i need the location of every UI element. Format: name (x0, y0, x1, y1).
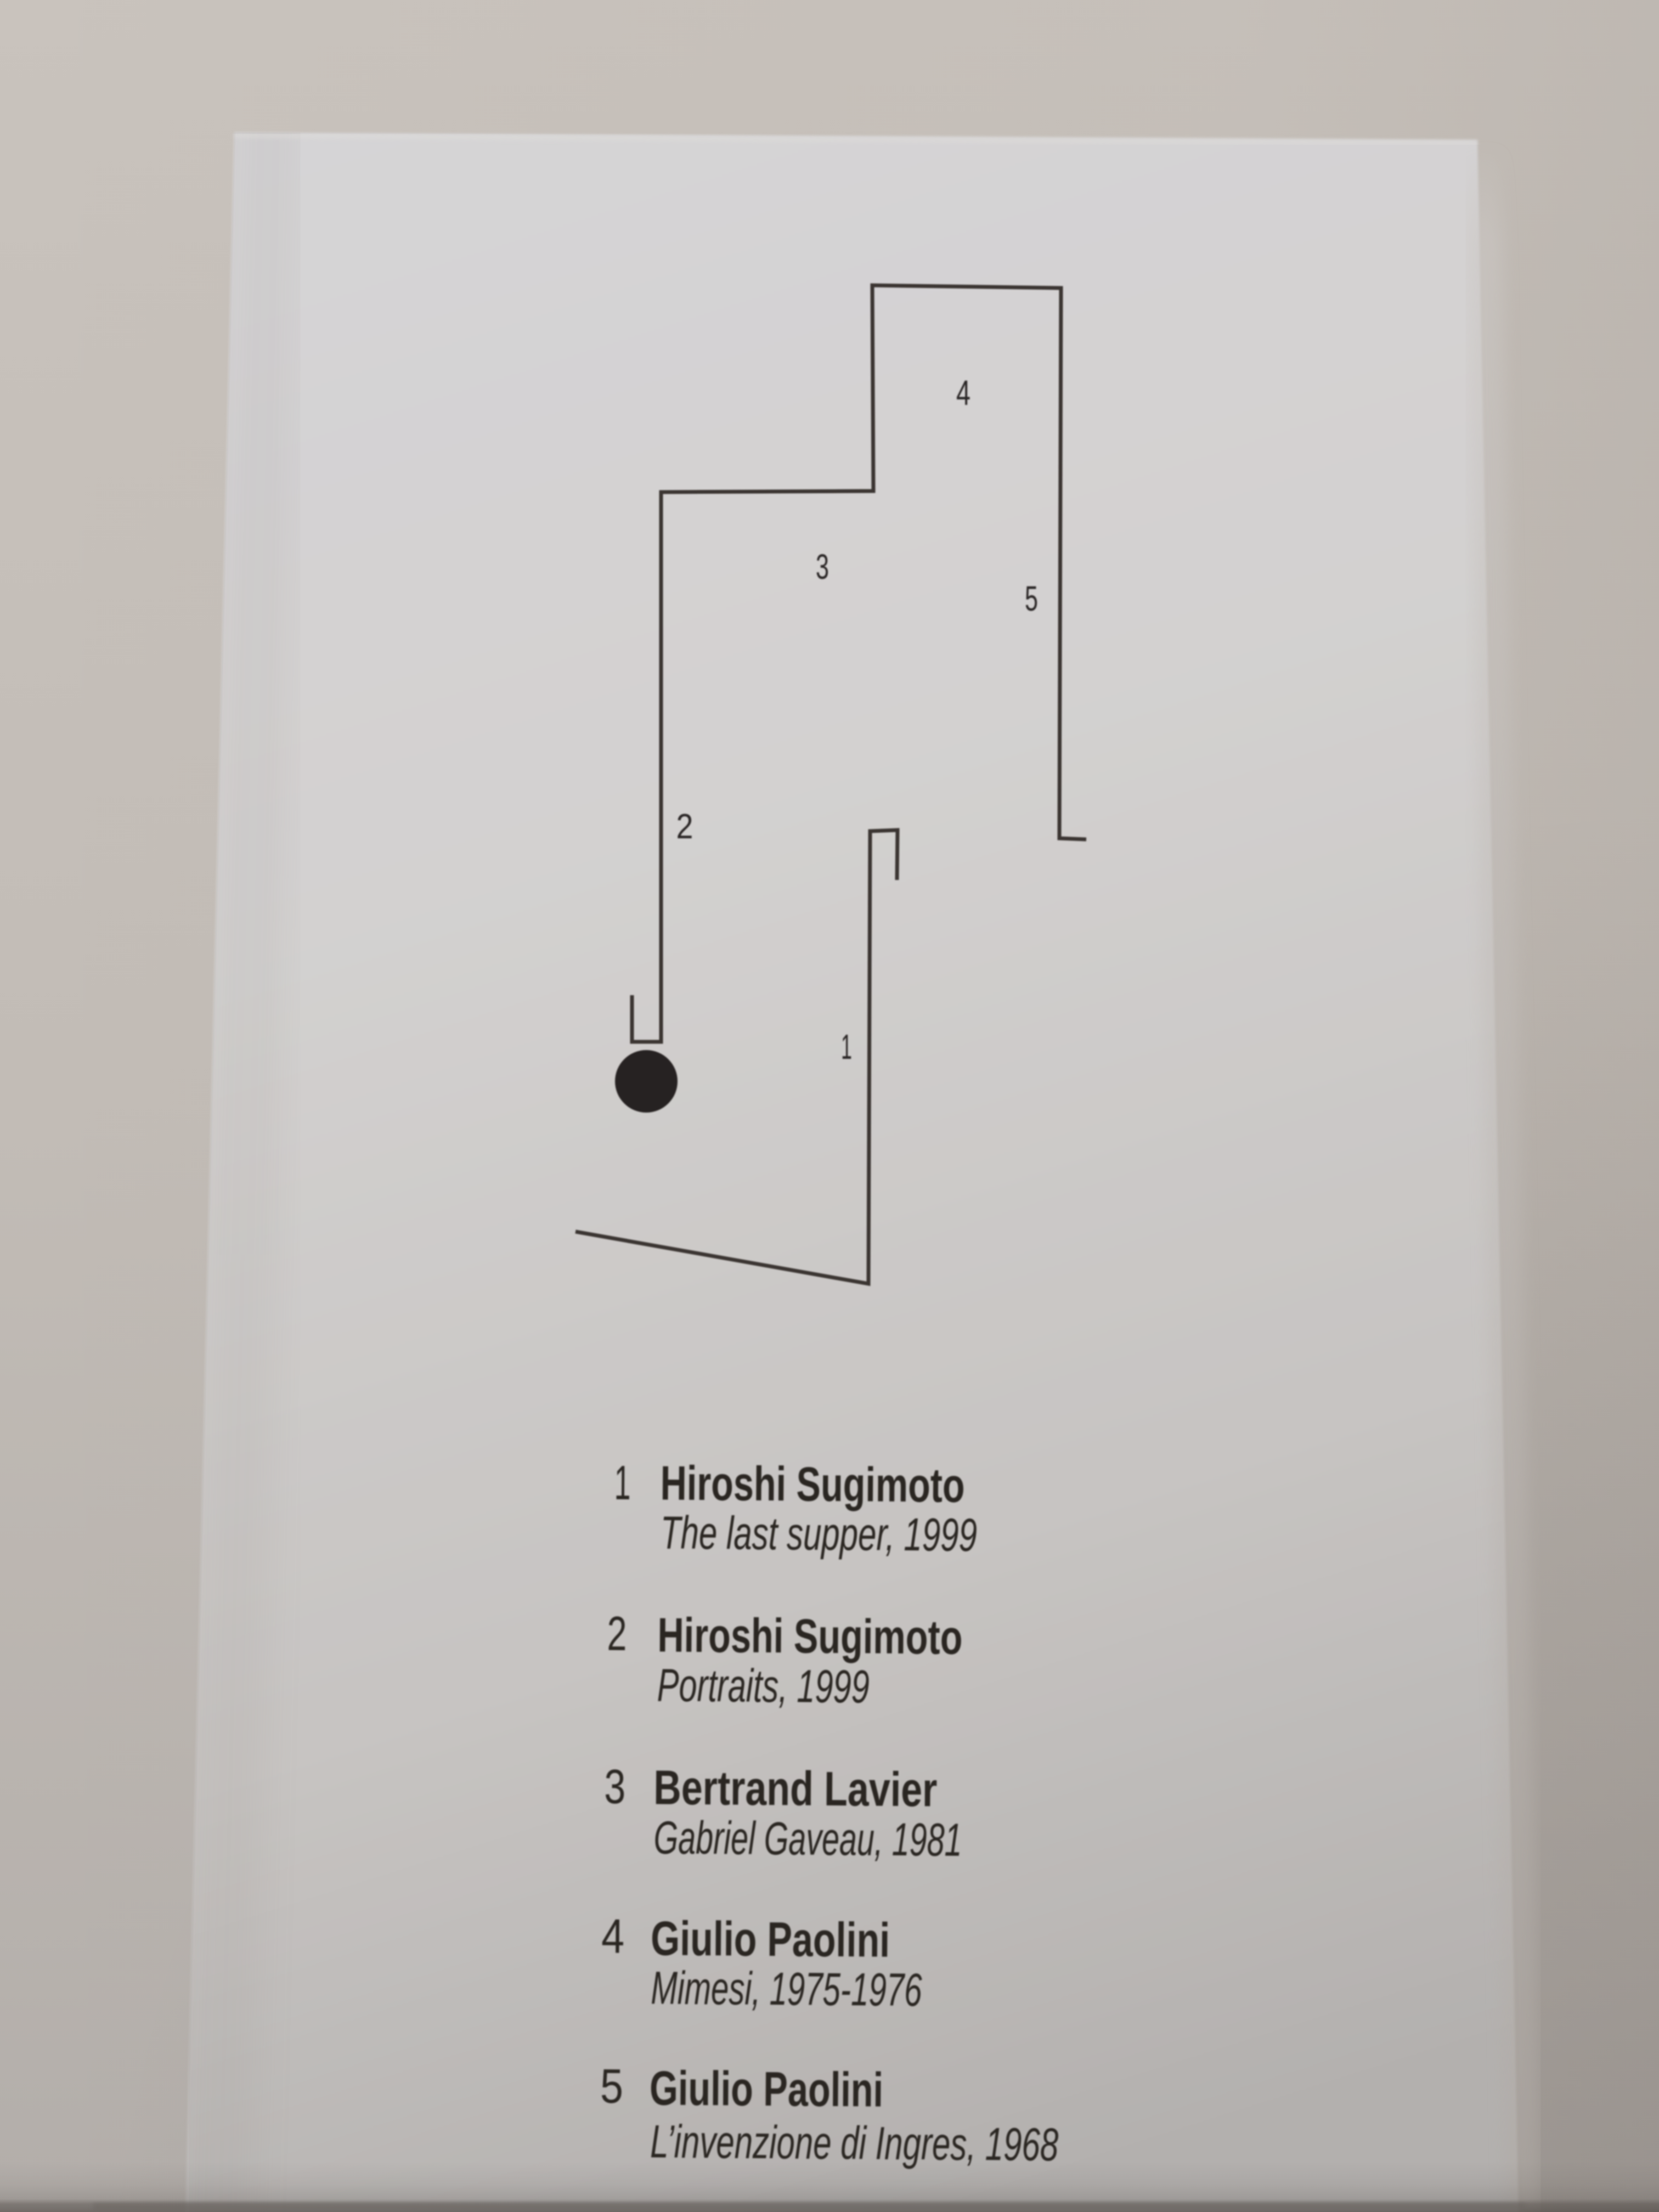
svg-text:5: 5 (600, 2059, 624, 2113)
svg-text:Mimesi, 1975-1976: Mimesi, 1975-1976 (651, 1962, 922, 2016)
svg-text:1: 1 (841, 1027, 852, 1066)
svg-text:Portraits, 1999: Portraits, 1999 (657, 1659, 870, 1712)
svg-text:Giulio Paolini: Giulio Paolini (651, 1911, 890, 1967)
svg-text:Hiroshi Sugimoto: Hiroshi Sugimoto (657, 1607, 963, 1664)
svg-text:Giulio Paolini: Giulio Paolini (650, 2061, 884, 2117)
svg-text:Gabriel Gaveau, 1981: Gabriel Gaveau, 1981 (653, 1812, 962, 1865)
svg-text:4: 4 (601, 1909, 625, 1963)
svg-text:2: 2 (607, 1606, 627, 1661)
svg-text:1: 1 (614, 1455, 631, 1510)
svg-text:Hiroshi Sugimoto: Hiroshi Sugimoto (660, 1455, 965, 1512)
svg-text:3: 3 (604, 1759, 626, 1814)
svg-text:4: 4 (956, 373, 970, 413)
svg-text:5: 5 (1025, 579, 1038, 618)
svg-text:Bertrand Lavier: Bertrand Lavier (653, 1760, 938, 1816)
svg-text:2: 2 (676, 806, 693, 846)
svg-text:The last supper, 1999: The last supper, 1999 (661, 1506, 978, 1561)
svg-text:3: 3 (816, 547, 829, 586)
